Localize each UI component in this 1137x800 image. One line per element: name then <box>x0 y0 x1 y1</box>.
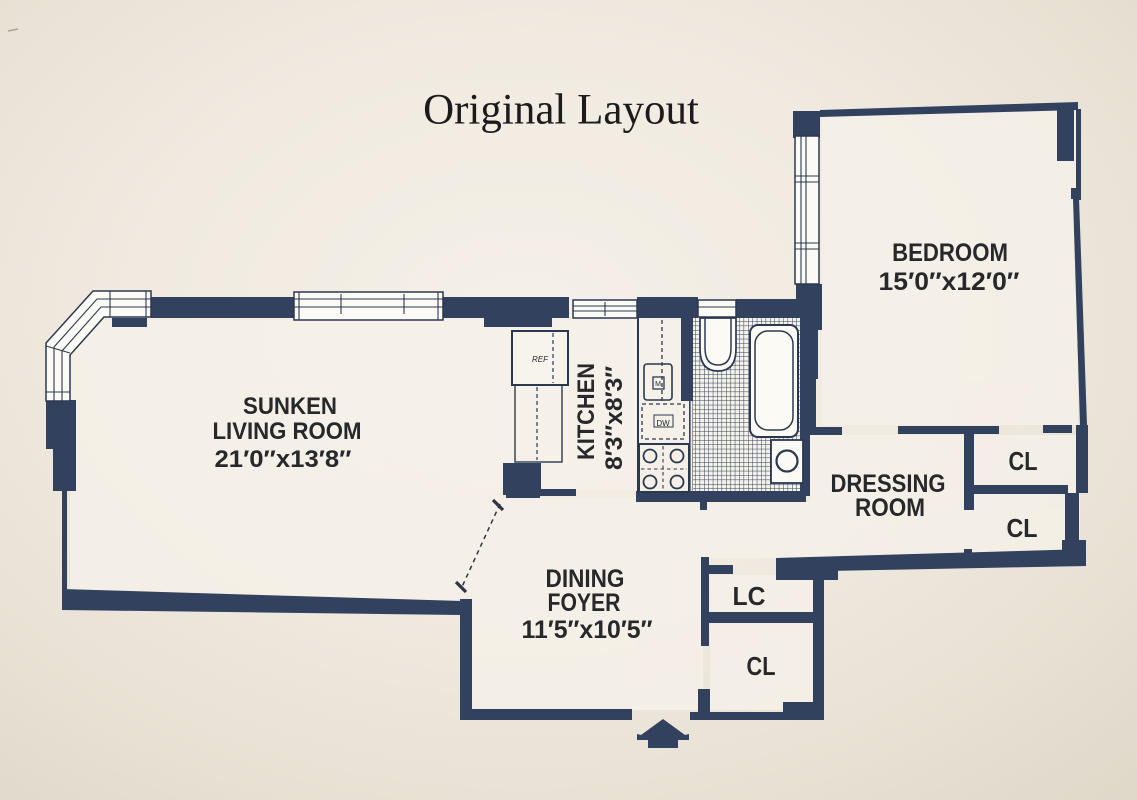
svg-text:ROOM: ROOM <box>855 494 925 522</box>
svg-text:KITCHEN: KITCHEN <box>572 363 599 460</box>
svg-text:LIVING ROOM: LIVING ROOM <box>212 417 361 444</box>
svg-text:15′0″x12′0″: 15′0″x12′0″ <box>879 269 1020 296</box>
svg-text:M: M <box>655 381 661 388</box>
svg-text:Original Layout: Original Layout <box>423 87 699 134</box>
svg-text:FOYER: FOYER <box>548 588 621 616</box>
svg-text:DW: DW <box>656 419 670 428</box>
svg-text:21′0″x13′8″: 21′0″x13′8″ <box>215 446 352 473</box>
svg-text:CL: CL <box>1007 515 1038 543</box>
svg-text:8′3″x8′3″: 8′3″x8′3″ <box>601 366 628 470</box>
svg-text:CL: CL <box>1009 447 1038 476</box>
svg-text:LC: LC <box>733 582 766 611</box>
svg-text:11′5″x10′5″: 11′5″x10′5″ <box>522 616 653 644</box>
svg-text:BEDROOM: BEDROOM <box>892 240 1008 267</box>
svg-text:REF: REF <box>532 355 549 364</box>
svg-text:SUNKEN: SUNKEN <box>243 392 337 419</box>
svg-text:CL: CL <box>747 652 776 681</box>
